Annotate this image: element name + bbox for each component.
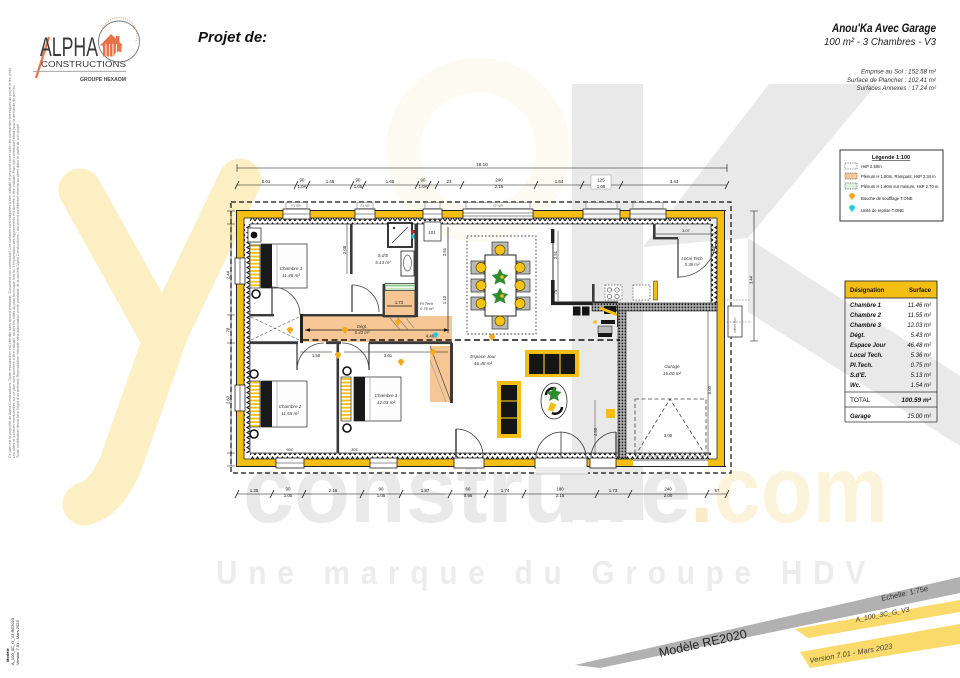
- svg-text:1.54: 1.54: [555, 179, 564, 184]
- svg-text:Chambre 2: Chambre 2: [279, 404, 302, 409]
- svg-text:3.07: 3.07: [682, 228, 691, 233]
- svg-text:1.35: 1.35: [250, 488, 259, 493]
- svg-text:1.54 m²: 1.54 m²: [911, 383, 932, 389]
- svg-text:2.15: 2.15: [495, 184, 504, 189]
- svg-text:5.36 m²: 5.36 m²: [911, 353, 932, 359]
- svg-text:60: 60: [466, 487, 471, 492]
- svg-text:Désignation: Désignation: [850, 288, 885, 294]
- svg-text:2.08: 2.08: [342, 245, 347, 254]
- svg-text:Bouche de soufflage T.ONE: Bouche de soufflage T.ONE: [861, 196, 913, 201]
- svg-text:2.15: 2.15: [556, 493, 565, 498]
- svg-text:4.50: 4.50: [593, 427, 598, 436]
- svg-text:5.01: 5.01: [262, 179, 271, 184]
- svg-text:2.60: 2.60: [226, 395, 231, 404]
- svg-text:16.10: 16.10: [476, 162, 488, 167]
- svg-text:12.03 m²: 12.03 m²: [907, 323, 932, 329]
- svg-text:Espace Jour: Espace Jour: [850, 343, 886, 349]
- svg-text:5.13 m²: 5.13 m²: [375, 260, 391, 265]
- svg-text:46.48 m²: 46.48 m²: [474, 361, 493, 366]
- svg-text:Surfaces Annexes : 17.24 m²: Surfaces Annexes : 17.24 m²: [856, 85, 937, 92]
- svg-text:1.74: 1.74: [501, 488, 510, 493]
- svg-text:Wc.: Wc.: [850, 383, 861, 389]
- svg-text:CONSTRUCTIONS: CONSTRUCTIONS: [41, 59, 126, 69]
- svg-text:GROUPE HEXAOM: GROUPE HEXAOM: [80, 77, 126, 83]
- svg-text:F2 VR: F2 VR: [360, 204, 370, 208]
- svg-text:HsP 2.50m: HsP 2.50m: [861, 164, 882, 169]
- svg-text:1.87: 1.87: [421, 488, 430, 493]
- svg-text:TOTAL: TOTAL: [850, 397, 871, 404]
- svg-text:Plénum H 1.80m, Rampant, HsP 2: Plénum H 1.80m, Rampant, HsP 2.34 m: [861, 174, 936, 179]
- svg-text:90: 90: [356, 178, 361, 183]
- svg-text:2.44: 2.44: [226, 270, 231, 279]
- svg-text:2.51: 2.51: [442, 247, 447, 256]
- svg-text:Surface de Plancher : 102.41 m: Surface de Plancher : 102.41 m²: [847, 77, 937, 84]
- svg-text:Unité de reprise T.ONE: Unité de reprise T.ONE: [861, 208, 904, 213]
- svg-text:5.00: 5.00: [707, 385, 712, 394]
- svg-text:240: 240: [495, 178, 503, 183]
- svg-text:1.05: 1.05: [284, 493, 293, 498]
- svg-text:S.d'E.: S.d'E.: [850, 373, 867, 379]
- svg-text:0.95: 0.95: [464, 493, 473, 498]
- svg-text:1.45: 1.45: [326, 179, 335, 184]
- svg-text:Plénum H 1.80m sur mesure, HsP: Plénum H 1.80m sur mesure, HsP 2.70 m: [861, 184, 939, 189]
- svg-text:2.48: 2.48: [710, 245, 715, 254]
- svg-text:101: 101: [428, 230, 436, 235]
- svg-text:3.43: 3.43: [670, 179, 679, 184]
- svg-text:11.46 m²: 11.46 m²: [282, 273, 300, 278]
- svg-text:2.51: 2.51: [553, 250, 558, 259]
- svg-text:Version 7.01 - Mars 2023: Version 7.01 - Mars 2023: [15, 620, 20, 665]
- svg-text:3.61: 3.61: [384, 353, 393, 358]
- svg-text:1.0A: 1.0A: [297, 184, 306, 189]
- svg-text:23: 23: [447, 179, 452, 184]
- svg-text:1.05: 1.05: [354, 184, 363, 189]
- svg-text:15.00 m²: 15.00 m²: [663, 371, 682, 376]
- svg-text:Pl.Tech.: Pl.Tech.: [850, 363, 873, 369]
- svg-text:Chambre 1: Chambre 1: [850, 303, 882, 309]
- svg-text:Anou'Ka Avec Garage: Anou'Ka Avec Garage: [831, 21, 936, 35]
- svg-text:80C: 80C: [352, 448, 359, 452]
- svg-text:F1 VR: F1 VR: [291, 204, 301, 208]
- svg-text:180: 180: [556, 487, 564, 492]
- svg-text:1.05: 1.05: [597, 184, 606, 189]
- svg-text:0.75 m²: 0.75 m²: [911, 363, 932, 369]
- svg-text:75: 75: [553, 289, 558, 294]
- svg-text:90C: 90C: [287, 448, 294, 452]
- svg-text:3.44: 3.44: [749, 275, 754, 284]
- svg-text:1.0A: 1.0A: [418, 184, 427, 189]
- svg-text:90: 90: [379, 487, 384, 492]
- svg-text:Surface: Surface: [909, 288, 932, 294]
- svg-text:3.00: 3.00: [664, 433, 673, 438]
- svg-text:Emprise au Sol : 152.58 m²: Emprise au Sol : 152.58 m²: [861, 69, 937, 76]
- svg-text:Garage: Garage: [664, 364, 680, 369]
- svg-text:1.73: 1.73: [395, 300, 404, 305]
- svg-text:Chambre 3: Chambre 3: [375, 393, 398, 398]
- svg-text:2.00: 2.00: [664, 493, 673, 498]
- svg-text:1.50: 1.50: [312, 353, 321, 358]
- svg-text:5.36 m²: 5.36 m²: [685, 262, 700, 267]
- svg-text:90: 90: [300, 178, 305, 183]
- svg-text:Toute modification devra faire: Toute modification devra faire l'objet d…: [16, 123, 20, 458]
- svg-text:90: 90: [286, 487, 291, 492]
- svg-text:5.43 m²: 5.43 m²: [911, 333, 932, 339]
- svg-text:1.05: 1.05: [377, 493, 386, 498]
- svg-text:57: 57: [715, 488, 720, 493]
- svg-text:CF VR: CF VR: [493, 204, 503, 208]
- svg-text:5.13 m²: 5.13 m²: [911, 373, 932, 379]
- svg-text:S.d'E: S.d'E: [378, 253, 390, 258]
- svg-text:Modèle RE2020: Modèle RE2020: [658, 627, 749, 660]
- svg-text:90: 90: [421, 178, 426, 183]
- svg-text:15.00 m²: 15.00 m²: [907, 414, 932, 420]
- svg-text:0.75 m²: 0.75 m²: [420, 306, 434, 311]
- svg-text:Chambre 3: Chambre 3: [850, 323, 882, 329]
- svg-text:100.59 m²: 100.59 m²: [901, 397, 931, 404]
- svg-text:240: 240: [664, 487, 672, 492]
- svg-text:Garage: Garage: [850, 414, 871, 420]
- svg-text:Dégt.: Dégt.: [850, 333, 865, 339]
- svg-text:11.55 m²: 11.55 m²: [908, 313, 932, 319]
- svg-text:100 m² - 3 Chambres - V3: 100 m² - 3 Chambres - V3: [824, 36, 936, 48]
- svg-text:ALPHA: ALPHA: [40, 32, 98, 62]
- svg-text:Une marque du Groupe HDV: Une marque du Groupe HDV: [216, 554, 876, 591]
- svg-text:Espace Jour: Espace Jour: [470, 354, 496, 359]
- svg-text:5.43 m²: 5.43 m²: [355, 330, 370, 335]
- svg-text:78: 78: [226, 327, 231, 332]
- svg-text:Dégt.: Dégt.: [357, 324, 368, 329]
- svg-text:11.46 m²: 11.46 m²: [908, 303, 932, 309]
- svg-text:Légende 1:100: Légende 1:100: [872, 155, 910, 161]
- svg-text:Local Tech: Local Tech: [681, 256, 703, 261]
- svg-text:125: 125: [597, 178, 605, 183]
- svg-text:Projet de:: Projet de:: [198, 29, 267, 46]
- svg-text:Chambre 1: Chambre 1: [280, 266, 303, 271]
- svg-text:12.03 m²: 12.03 m²: [377, 400, 396, 405]
- svg-text:46.48 m²: 46.48 m²: [907, 343, 932, 349]
- svg-text:11.55 m²: 11.55 m²: [281, 411, 299, 416]
- svg-text:1.10: 1.10: [442, 295, 447, 304]
- svg-text:2.15: 2.15: [329, 488, 338, 493]
- svg-text:Chambre 2: Chambre 2: [850, 313, 882, 319]
- svg-text:coffret élec: coffret élec: [733, 317, 737, 333]
- svg-text:1.65: 1.65: [386, 179, 395, 184]
- svg-text:1.73: 1.73: [609, 488, 618, 493]
- svg-text:Local Tech.: Local Tech.: [850, 353, 883, 359]
